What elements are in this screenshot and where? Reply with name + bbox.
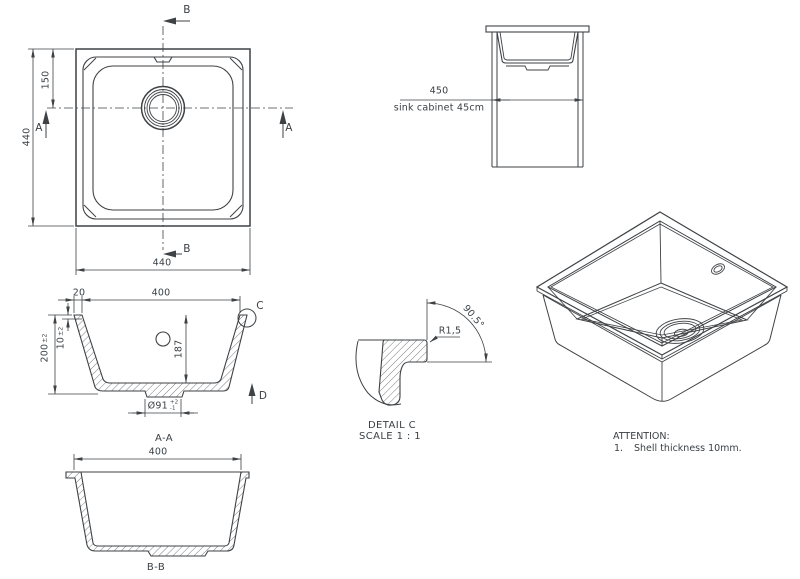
- dim-label-440-bottom: 440: [153, 258, 172, 268]
- countertop-slab: [486, 26, 589, 32]
- sink-bowl-front: [497, 32, 578, 70]
- section-arrow-a-left: [43, 110, 50, 124]
- detail-c-scale: SCALE 1 : 1: [359, 432, 421, 442]
- top-view-drawing: [28, 18, 293, 276]
- radius-label: R1,5: [439, 326, 462, 336]
- radius-leader: [430, 337, 460, 342]
- section-bb-title: B-B: [147, 563, 165, 573]
- overflow-hole-section: [156, 332, 170, 346]
- technical-drawing-sheet: B B A A 440 150 440 450 sink cabinet 45c…: [0, 0, 800, 579]
- attention-item-text: Shell thickness 10mm.: [634, 443, 742, 455]
- detail-c-title: DETAIL C: [368, 421, 416, 431]
- section-b-arrows: [163, 18, 190, 258]
- section-label-b-top: B: [183, 5, 190, 16]
- dim-label-drain: Ø91+2-1: [148, 401, 179, 412]
- drawing-linework: [0, 0, 800, 579]
- dim-label-20: 20: [73, 288, 86, 298]
- section-label-b-bottom: B: [183, 244, 190, 255]
- direction-d-arrow: [249, 383, 256, 404]
- dim-label-150: 150: [41, 71, 51, 90]
- cabinet-sides: [492, 32, 583, 167]
- dim-label-450: 450: [430, 86, 449, 96]
- attention-item-number: 1.: [614, 443, 623, 455]
- section-aa-cut-material: [74, 315, 247, 397]
- sink-bowl-slope-edge: [93, 66, 233, 210]
- dim-label-10: 10±2: [56, 327, 66, 350]
- dim-label-187: 187: [174, 340, 184, 359]
- dim-label-440-left: 440: [22, 128, 32, 147]
- section-bb-drawing: [66, 454, 249, 556]
- dim-label-200: 200±2: [40, 334, 50, 363]
- section-aa-drawing: [48, 296, 256, 417]
- section-aa-dimensions: [48, 296, 240, 417]
- cabinet-caption: sink cabinet 45cm: [394, 103, 484, 113]
- isometric-view-drawing: [537, 212, 787, 401]
- section-label-a-right: A: [285, 123, 292, 134]
- section-bb-cut-material: [66, 472, 249, 556]
- attention-heading: ATTENTION:: [613, 431, 670, 443]
- cabinet-view-drawing: [400, 26, 589, 167]
- section-aa-title: A-A: [155, 434, 173, 444]
- section-arrow-b-top: [163, 18, 176, 25]
- drain-bump: [506, 66, 569, 70]
- dimension-lines: [28, 49, 250, 275]
- section-label-a-left: A: [35, 123, 42, 134]
- dim-label-400-aa: 400: [152, 288, 171, 298]
- detail-c-cut-material: [379, 340, 427, 405]
- direction-d-label: D: [259, 391, 267, 402]
- overflow-hole-3d: [710, 262, 727, 277]
- detail-c-label: C: [256, 301, 264, 312]
- dim-label-400-bb: 400: [149, 447, 168, 457]
- bowl-bottom-fillet-edge: [582, 287, 742, 335]
